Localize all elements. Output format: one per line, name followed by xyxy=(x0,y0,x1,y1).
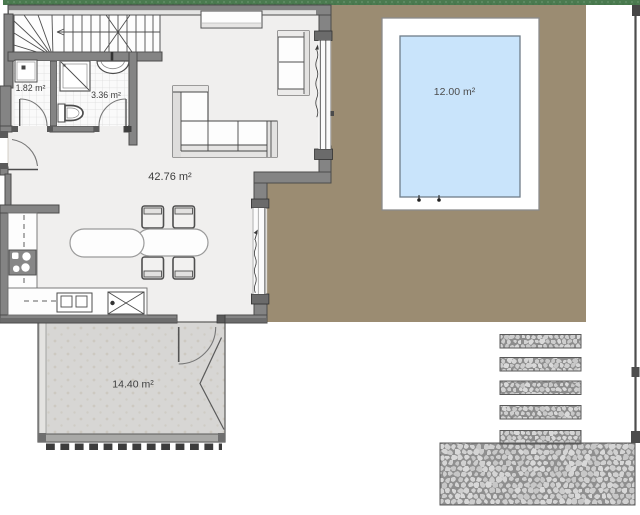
svg-text:12.00 m²: 12.00 m² xyxy=(434,86,476,98)
svg-text:14.40 m²: 14.40 m² xyxy=(112,379,154,391)
svg-text:3.36 m²: 3.36 m² xyxy=(91,90,121,100)
svg-text:42.76 m²: 42.76 m² xyxy=(148,171,192,183)
svg-text:1.82 m²: 1.82 m² xyxy=(16,83,46,93)
